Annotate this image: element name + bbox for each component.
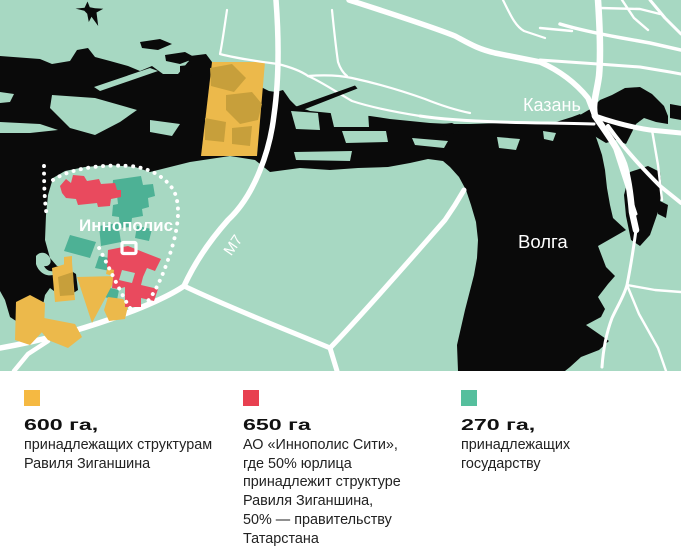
svg-text:Волга: Волга bbox=[518, 231, 568, 252]
svg-text:Иннополис: Иннополис bbox=[79, 216, 173, 235]
svg-text:Казань: Казань bbox=[523, 95, 581, 115]
